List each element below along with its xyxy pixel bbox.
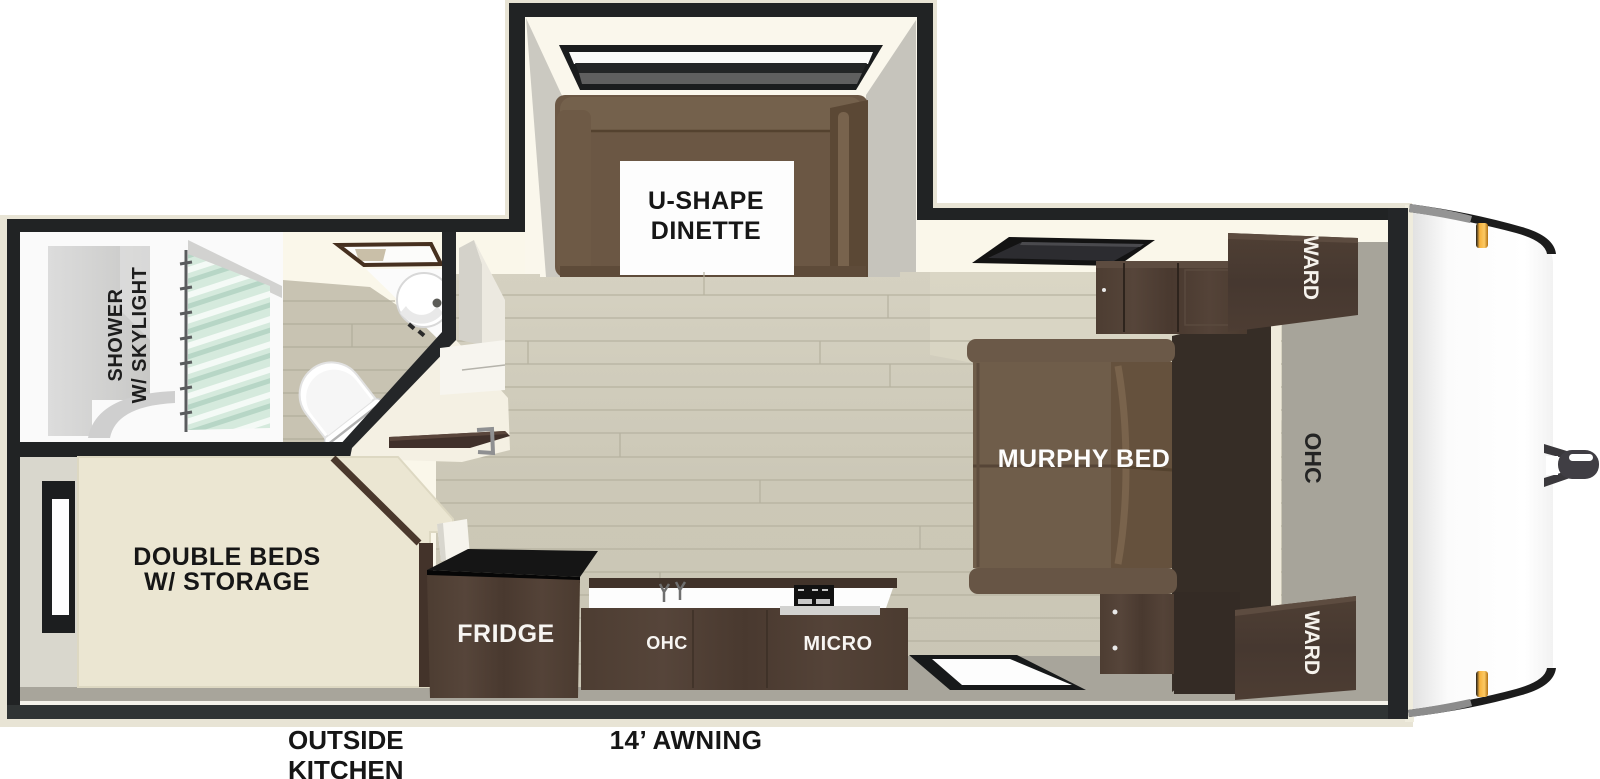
svg-text:OHC: OHC — [1300, 432, 1326, 483]
svg-text:W/ SKYLIGHT: W/ SKYLIGHT — [129, 267, 151, 404]
svg-text:OHC: OHC — [646, 633, 688, 653]
svg-text:W/ STORAGE: W/ STORAGE — [144, 568, 310, 596]
svg-text:SHOWER: SHOWER — [105, 288, 127, 381]
svg-text:KITCHEN: KITCHEN — [288, 755, 404, 779]
svg-text:DOUBLE BEDS: DOUBLE BEDS — [133, 543, 320, 571]
svg-text:WARD: WARD — [1300, 611, 1323, 675]
svg-text:OUTSIDE: OUTSIDE — [288, 725, 404, 755]
svg-text:14’ AWNING: 14’ AWNING — [610, 725, 763, 755]
svg-text:WARD: WARD — [1299, 236, 1322, 300]
svg-text:U-SHAPE: U-SHAPE — [648, 187, 764, 215]
svg-text:MICRO: MICRO — [803, 633, 872, 655]
svg-text:MURPHY BED: MURPHY BED — [998, 445, 1171, 473]
svg-text:DINETTE: DINETTE — [651, 217, 761, 245]
svg-text:FRIDGE: FRIDGE — [457, 620, 554, 648]
